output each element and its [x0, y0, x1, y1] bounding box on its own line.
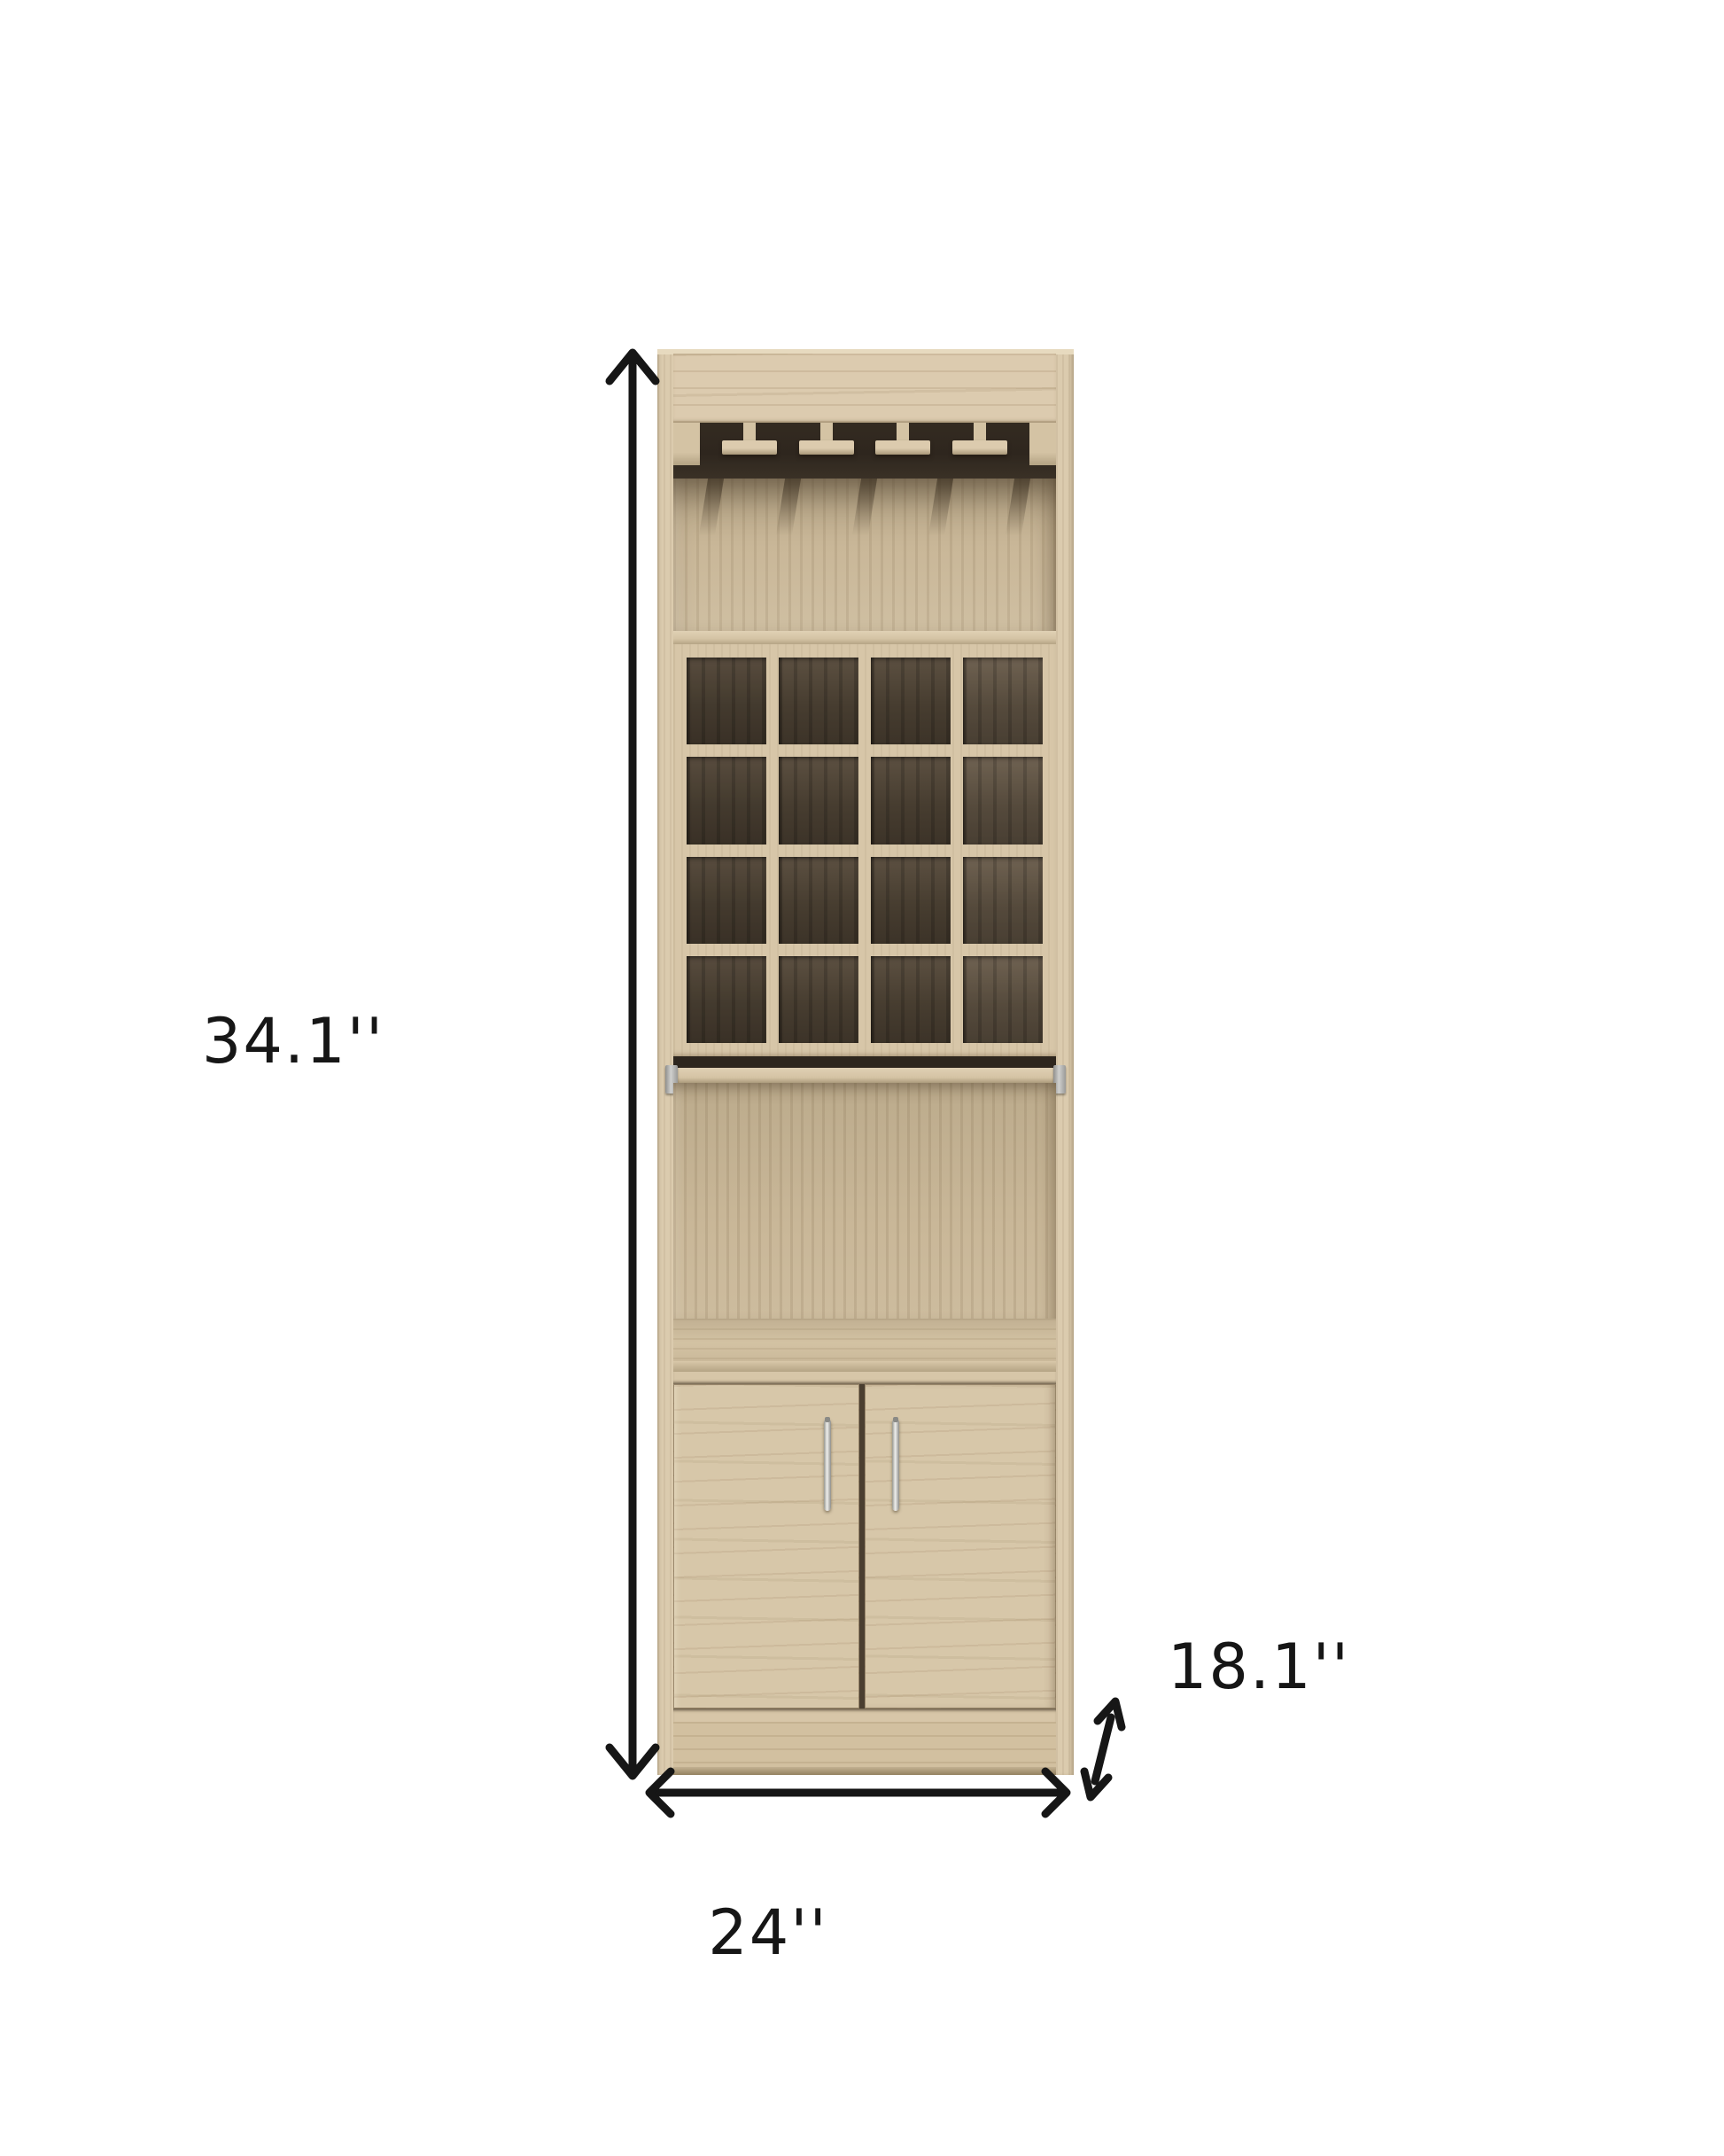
dimension-diagram-canvas: 34.1'' 24'' 18.1'' — [0, 0, 1724, 2156]
dimension-arrows — [0, 0, 1724, 2156]
width-label: 24'' — [708, 1902, 828, 1964]
height-arrow — [610, 353, 656, 1776]
depth-arrow — [1084, 1701, 1122, 1797]
depth-label: 18.1'' — [1168, 1636, 1350, 1698]
height-label: 34.1'' — [202, 1010, 384, 1072]
width-arrow — [649, 1771, 1067, 1814]
